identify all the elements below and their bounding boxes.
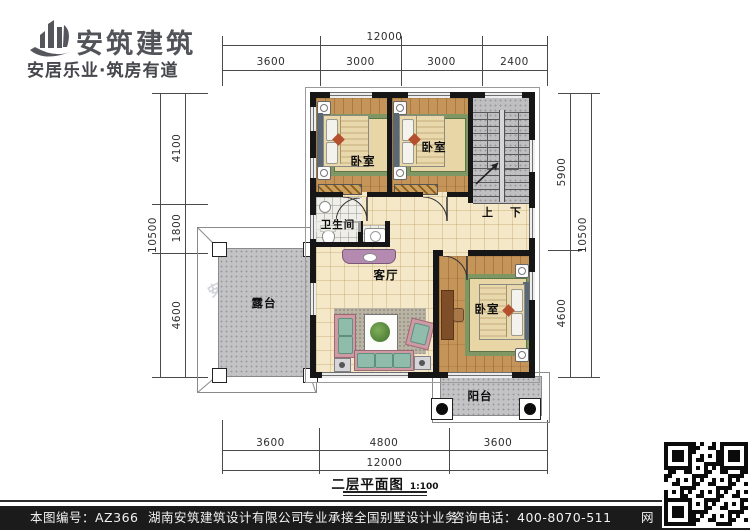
dim-line-left-segments [185, 93, 186, 377]
dim-left-seg: 1800 [171, 203, 183, 253]
dim-line-right-total [591, 93, 592, 377]
room-label-bedroom1: 卧室 [340, 155, 386, 168]
tv-stand [342, 249, 396, 264]
company-tagline: 安居乐业·筑房有道 [27, 56, 178, 81]
wall-hallway [447, 192, 473, 197]
stair-direction-arrow [473, 156, 503, 188]
wall-sink-nook [385, 221, 390, 247]
nightstand [317, 166, 331, 180]
wall-bed3-top [468, 250, 535, 256]
door-bedroom2 [423, 197, 448, 222]
window [310, 158, 316, 178]
dim-right-seg: 4600 [556, 288, 568, 338]
dim-right-total: 10500 [577, 210, 589, 260]
wall-bathroom-bottom [310, 242, 390, 247]
room-label-bedroom3: 卧室 [464, 303, 510, 316]
bedroom1-furniture [316, 98, 388, 194]
tv [363, 253, 377, 262]
wall-hallway [367, 192, 423, 197]
wall-hallway [310, 192, 343, 197]
dim-ext [152, 93, 208, 94]
dim-bottom-total: 12000 [222, 457, 547, 469]
footer-separator [0, 500, 750, 502]
dim-ext [558, 93, 600, 94]
stair-up-label: 上 [480, 206, 496, 219]
dim-top-total: 12000 [222, 31, 547, 43]
dim-left-total: 10500 [147, 210, 159, 260]
footer-service: 专业承接全国别墅设计业务 [302, 506, 458, 530]
footer-phone: 咨询电话：400-8070-511 [452, 506, 612, 530]
room-label-bedroom2: 卧室 [411, 141, 457, 154]
plant [370, 322, 390, 342]
window [529, 140, 535, 172]
window [310, 107, 316, 131]
balcony-door [448, 372, 512, 378]
balcony-column [519, 398, 541, 420]
room-label-living: 客厅 [363, 269, 409, 282]
caption-underline-thick [343, 491, 427, 493]
nightstand [393, 166, 407, 180]
wall-bed2-stair [468, 92, 473, 203]
wall-bed3-left [433, 250, 439, 372]
window [529, 272, 535, 300]
end-table [334, 358, 351, 372]
nightstand [515, 264, 529, 278]
dim-ext [547, 420, 548, 474]
drawing-caption: 二层平面图1:100 [310, 473, 460, 493]
dim-line-top-total [222, 45, 547, 46]
terrace-post [212, 242, 227, 257]
dim-line-top-segments [222, 70, 547, 71]
window [322, 372, 408, 378]
dim-line-left-total [160, 93, 161, 377]
wall-bed1-bed2 [387, 92, 392, 197]
window [330, 92, 372, 98]
dim-ext [558, 377, 600, 378]
nightstand [515, 348, 529, 362]
dim-bottom-seg: 4800 [319, 437, 449, 449]
window [408, 92, 450, 98]
terrace-post [212, 368, 227, 383]
door-bedroom3 [443, 256, 468, 281]
floor-plan-page: 安筑建筑 安居乐业·筑房有道 安筑建筑 安筑建筑 安筑建筑 安筑建筑 hnazj… [0, 0, 750, 530]
desk-chair [453, 308, 464, 322]
dim-right-seg: 5900 [556, 147, 568, 197]
sofa-main [354, 350, 414, 371]
caption-underline-thin [343, 495, 427, 496]
stair-down-label: 下 [508, 206, 524, 219]
dim-left-seg: 4600 [171, 290, 183, 340]
room-label-bathroom: 卫生间 [315, 219, 361, 232]
qr-code [662, 440, 750, 528]
room-label-terrace: 露台 [234, 297, 294, 310]
dim-top-seg: 3000 [320, 56, 401, 68]
dim-ext [547, 36, 548, 86]
footer-drawing-no: 本图编号：AZ366 [30, 506, 138, 530]
window [485, 92, 522, 98]
footer-net-label: 网 [641, 506, 654, 530]
dim-bottom-seg: 3600 [222, 437, 319, 449]
dim-bottom-seg: 3600 [449, 437, 547, 449]
dim-line-right-segments [570, 93, 571, 377]
room-label-balcony: 阳台 [450, 390, 510, 403]
dim-top-seg: 2400 [482, 56, 547, 68]
dim-line-bottom-total [222, 470, 547, 471]
terrace-floor [218, 248, 312, 377]
footer-company: 湖南安筑建筑设计有限公司 [148, 506, 304, 530]
sofa-left [334, 314, 356, 358]
window [310, 283, 316, 315]
floor-drain [319, 201, 331, 213]
window [529, 208, 535, 238]
end-table [414, 356, 431, 370]
footer-bar: 本图编号：AZ366 湖南安筑建筑设计有限公司 专业承接全国别墅设计业务 咨询电… [0, 506, 750, 530]
dim-top-seg: 3000 [401, 56, 482, 68]
dim-left-seg: 4100 [171, 123, 183, 173]
dim-top-seg: 3600 [222, 56, 320, 68]
living-room-furniture [334, 306, 430, 372]
company-logo-icon [26, 14, 76, 60]
dim-line-bottom-segments [222, 450, 547, 451]
